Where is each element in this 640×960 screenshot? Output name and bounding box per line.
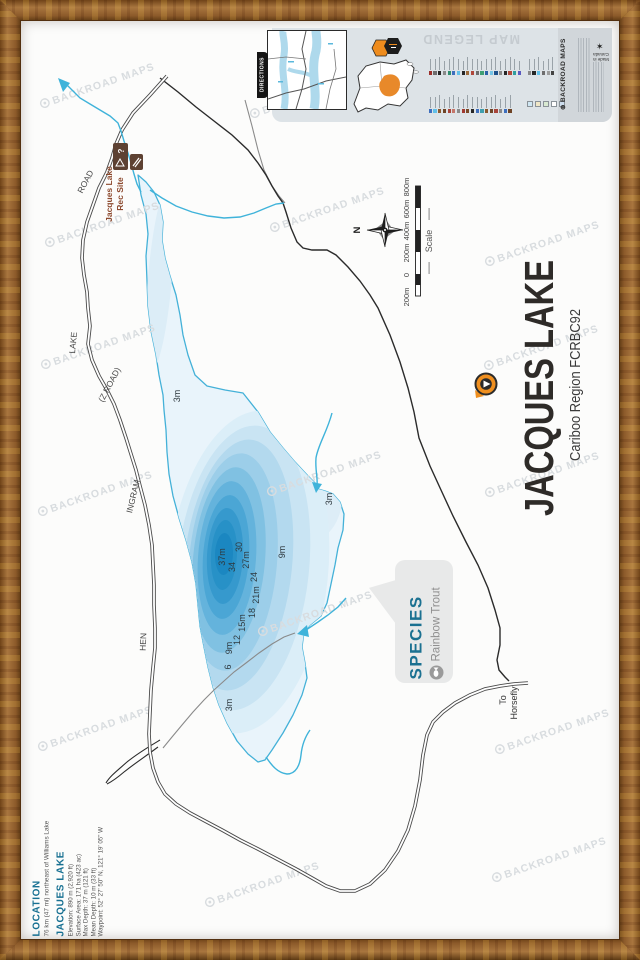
legal-fine-print (593, 62, 604, 112)
region-badge-icon (372, 38, 402, 56)
panel-layer: DIRECTIONS MAP LEGEND (0, 0, 640, 960)
species-name: Rainbow Trout (430, 587, 442, 661)
bc-region-map (350, 38, 422, 118)
legal-fine-print (578, 38, 591, 112)
location-block: LOCATION 76 km (47 mi) northeast of Will… (32, 798, 112, 937)
inset-map-graphic (268, 31, 346, 109)
stat-waypoint: Waypoint: 52° 27' 50" N, 121° 19' 05" W (98, 798, 106, 937)
maple-leaf-icon: ✶ (596, 40, 604, 51)
lake-stats-heading: JACQUES LAKE (56, 798, 67, 937)
directions-inset-map (267, 30, 347, 110)
framed-map-poster: BACKROAD MAPS BACKROAD MAPS BACKROAD MAP… (0, 0, 640, 960)
brand-logo-text: ⊕ BACKROAD MAPS (560, 40, 568, 110)
stat-mean-depth: Mean Depth: 10 m (33 ft) (90, 798, 98, 937)
directions-tab-label: DIRECTIONS (260, 58, 266, 93)
location-description: 76 km (47 mi) northeast of Williams Lake (44, 798, 51, 937)
gear-icon: ⊕ (560, 102, 567, 110)
map-poster: BACKROAD MAPS BACKROAD MAPS BACKROAD MAP… (21, 21, 619, 939)
directions-tab: DIRECTIONS (257, 52, 268, 98)
legend-symbols-row1b (527, 58, 555, 75)
brand-name: BACKROAD MAPS (560, 38, 567, 102)
species-callout: SPECIES Rainbow Trout (395, 560, 453, 683)
fish-icon (429, 665, 443, 679)
stat-elevation: Elevation: 890 m (2,920 ft) (68, 798, 76, 937)
stat-surface-area: Surface Area: 171 ha (423 ac) (75, 798, 83, 937)
species-heading: SPECIES (406, 560, 426, 679)
callout-tail (369, 580, 396, 624)
location-heading: LOCATION (32, 798, 43, 937)
made-in-canada: Made in Canada (590, 52, 612, 62)
legend-symbols-row1 (428, 58, 522, 75)
legend-symbols-row2 (428, 96, 512, 113)
stat-max-depth: Max Depth: 37 m (121 ft) (83, 798, 91, 937)
map-legend-title: MAP LEGEND (424, 32, 520, 46)
